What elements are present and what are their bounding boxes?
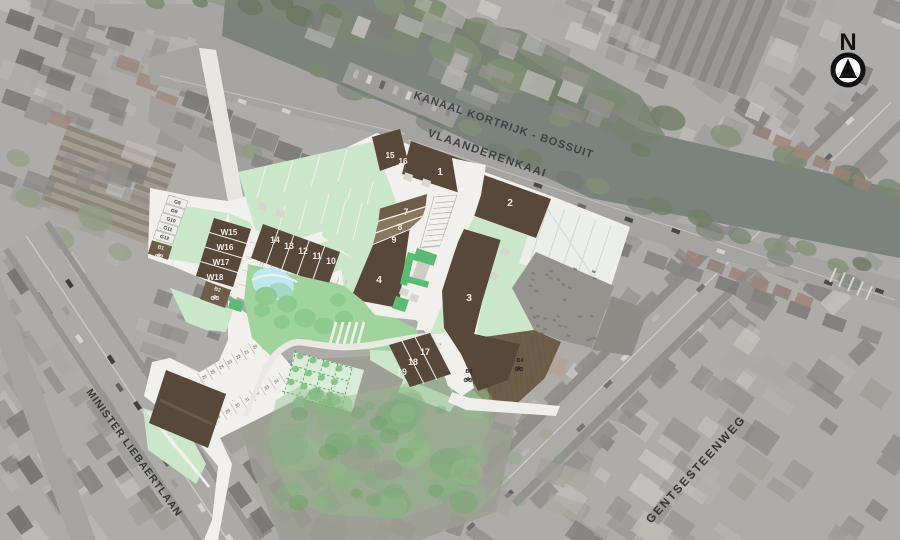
- svg-text:14: 14: [270, 235, 280, 245]
- svg-text:8: 8: [398, 222, 403, 232]
- svg-text:15: 15: [385, 151, 395, 160]
- svg-text:W15: W15: [221, 228, 238, 237]
- svg-text:W16: W16: [217, 243, 234, 252]
- svg-text:9: 9: [392, 235, 397, 245]
- svg-text:N: N: [839, 29, 856, 56]
- svg-text:3: 3: [466, 292, 472, 304]
- svg-text:W17: W17: [213, 258, 230, 267]
- svg-text:12: 12: [298, 246, 308, 256]
- svg-text:4: 4: [376, 274, 382, 286]
- svg-text:10: 10: [326, 256, 336, 266]
- svg-text:B3: B3: [466, 369, 473, 375]
- svg-text:11: 11: [312, 251, 321, 261]
- svg-text:7: 7: [404, 207, 409, 217]
- svg-text:2: 2: [507, 197, 513, 209]
- svg-text:B4: B4: [517, 358, 524, 364]
- svg-text:16: 16: [398, 157, 408, 166]
- svg-text:19: 19: [397, 367, 407, 377]
- svg-text:18: 18: [408, 357, 418, 367]
- svg-text:1: 1: [437, 166, 443, 178]
- svg-text:13: 13: [284, 241, 294, 251]
- svg-text:W18: W18: [207, 273, 224, 282]
- svg-text:17: 17: [420, 347, 430, 357]
